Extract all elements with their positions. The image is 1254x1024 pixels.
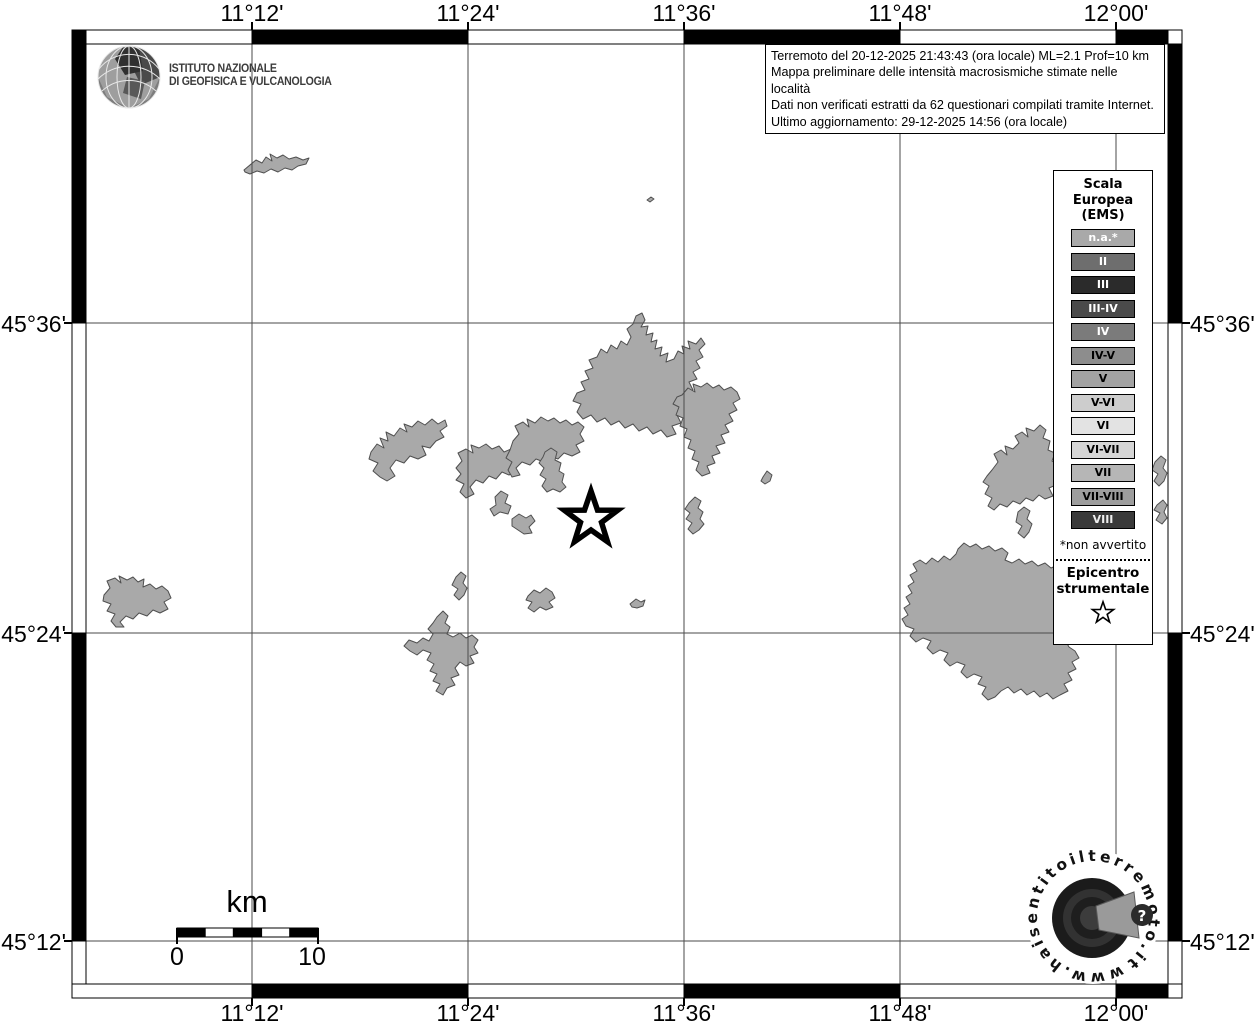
lat-label-left: 45°24' (0, 621, 66, 648)
macroseismic-map-page: www.haisentitoilterremoto.it ? 11°12' 11… (0, 0, 1254, 1024)
land-polygon (1154, 500, 1167, 524)
land-polygons (103, 154, 1167, 700)
lon-label-bottom: 11°36' (629, 1000, 739, 1024)
event-info-box: Terremoto del 20-12-2025 21:43:43 (ora l… (765, 44, 1165, 134)
lon-label-bottom: 12°00' (1061, 1000, 1171, 1024)
legend-item-na: n.a.* (1071, 229, 1135, 247)
land-polygon (1016, 507, 1032, 538)
lon-label-bottom: 11°24' (413, 1000, 523, 1024)
land-polygon (526, 588, 555, 612)
scale-bar-unit: km (197, 884, 297, 920)
lon-label-bottom: 11°12' (197, 1000, 307, 1024)
epicenter-star (564, 491, 617, 542)
legend-item-iii-iv: III-IV (1071, 300, 1135, 318)
legend-item-vii: VII (1071, 464, 1135, 482)
legend-item-vi: VI (1071, 417, 1135, 435)
lon-label-top: 11°24' (413, 0, 523, 27)
ingv-logo-line1: ISTITUTO NAZIONALE (169, 63, 332, 76)
legend-item-iv-v: IV-V (1071, 347, 1135, 365)
lon-label-top: 12°00' (1061, 0, 1171, 27)
land-polygon (673, 383, 740, 476)
legend-item-viii: VIII (1071, 511, 1135, 529)
scale-bar-start: 0 (162, 943, 192, 972)
intensity-legend: Scala Europea (EMS) n.a.* II III III-IV … (1053, 170, 1153, 645)
lon-label-bottom: 11°48' (845, 1000, 955, 1024)
event-info-line4: Ultimo aggiornamento: 29-12-2025 14:56 (… (771, 114, 1159, 130)
legend-epicenter-label-line2: strumentale (1054, 581, 1152, 597)
land-polygon (761, 471, 772, 484)
event-info-line3: Dati non verificati estratti da 62 quest… (771, 97, 1159, 113)
scale-bar (177, 928, 318, 944)
ingv-logo-line2: DI GEOFISICA E VULCANOLOGIA (169, 76, 332, 89)
land-polygon (512, 514, 535, 534)
legend-item-ii: II (1071, 253, 1135, 271)
legend-title-line1: Scala (1054, 177, 1152, 193)
legend-footnote: *non avvertito (1054, 538, 1152, 552)
lat-label-right: 45°36' (1190, 311, 1254, 338)
lon-label-top: 11°36' (629, 0, 739, 27)
legend-title-line2: Europea (1054, 193, 1152, 209)
land-polygon (685, 497, 704, 534)
legend-item-v: V (1071, 370, 1135, 388)
scale-bar-end: 10 (292, 943, 332, 972)
land-polygon (103, 576, 171, 627)
land-polygon (369, 419, 447, 481)
legend-epicenter-label-line1: Epicentro (1054, 565, 1152, 581)
legend-item-vi-vii: VI-VII (1071, 441, 1135, 459)
lat-label-right: 45°12' (1190, 929, 1254, 956)
land-polygon (404, 611, 478, 695)
lon-label-top: 11°48' (845, 0, 955, 27)
land-polygon (244, 154, 309, 174)
event-info-line1: Terremoto del 20-12-2025 21:43:43 (ora l… (771, 48, 1159, 64)
land-polygon (647, 197, 654, 202)
watermark-logo: www.haisentitoilterremoto.it ? (1023, 847, 1163, 987)
legend-title: Scala Europea (EMS) (1054, 177, 1152, 224)
legend-title-line3: (EMS) (1054, 208, 1152, 224)
lon-label-top: 11°12' (197, 0, 307, 27)
legend-divider (1056, 559, 1150, 561)
event-info-line2: Mappa preliminare delle intensità macros… (771, 64, 1159, 97)
land-polygon (452, 572, 467, 600)
lat-label-right: 45°24' (1190, 621, 1254, 648)
lat-label-left: 45°36' (0, 311, 66, 338)
land-polygon (490, 491, 511, 516)
land-polygon (1152, 456, 1167, 486)
lat-label-left: 45°12' (0, 929, 66, 956)
legend-item-vii-viii: VII-VIII (1071, 488, 1135, 506)
legend-epicenter-star-icon (1088, 599, 1118, 627)
land-polygon (630, 599, 645, 608)
ingv-logo: ISTITUTO NAZIONALE DI GEOFISICA E VULCAN… (96, 44, 346, 108)
graticule (86, 44, 1168, 984)
legend-item-v-vi: V-VI (1071, 394, 1135, 412)
legend-item-iii: III (1071, 276, 1135, 294)
ingv-globe-placeholder (96, 44, 160, 108)
legend-item-iv: IV (1071, 323, 1135, 341)
question-mark: ? (1138, 907, 1147, 925)
land-polygon (983, 425, 1060, 510)
